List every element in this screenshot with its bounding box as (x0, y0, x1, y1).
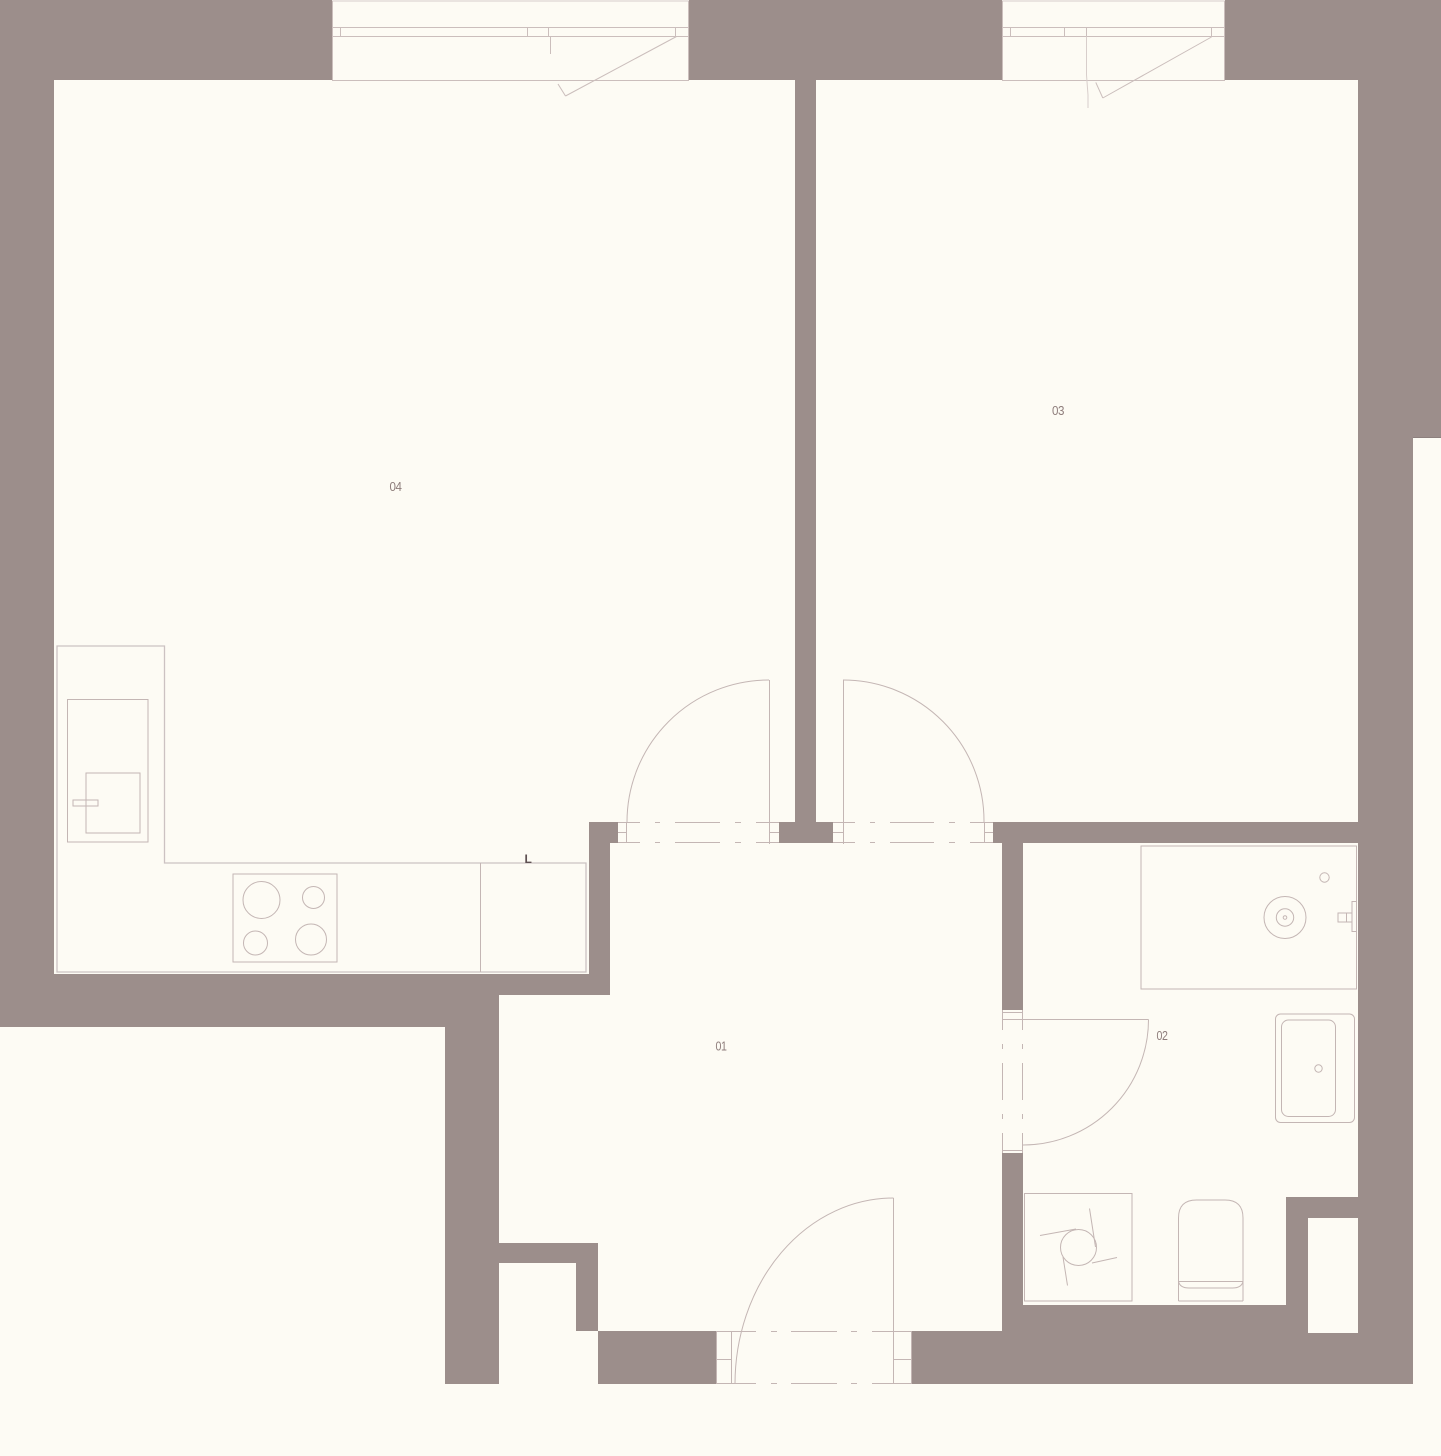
svg-text:04: 04 (390, 479, 402, 494)
svg-text:01: 01 (716, 1039, 727, 1054)
svg-text:03: 03 (1052, 403, 1064, 418)
svg-text:L: L (525, 852, 532, 866)
svg-text:02: 02 (1157, 1028, 1168, 1043)
